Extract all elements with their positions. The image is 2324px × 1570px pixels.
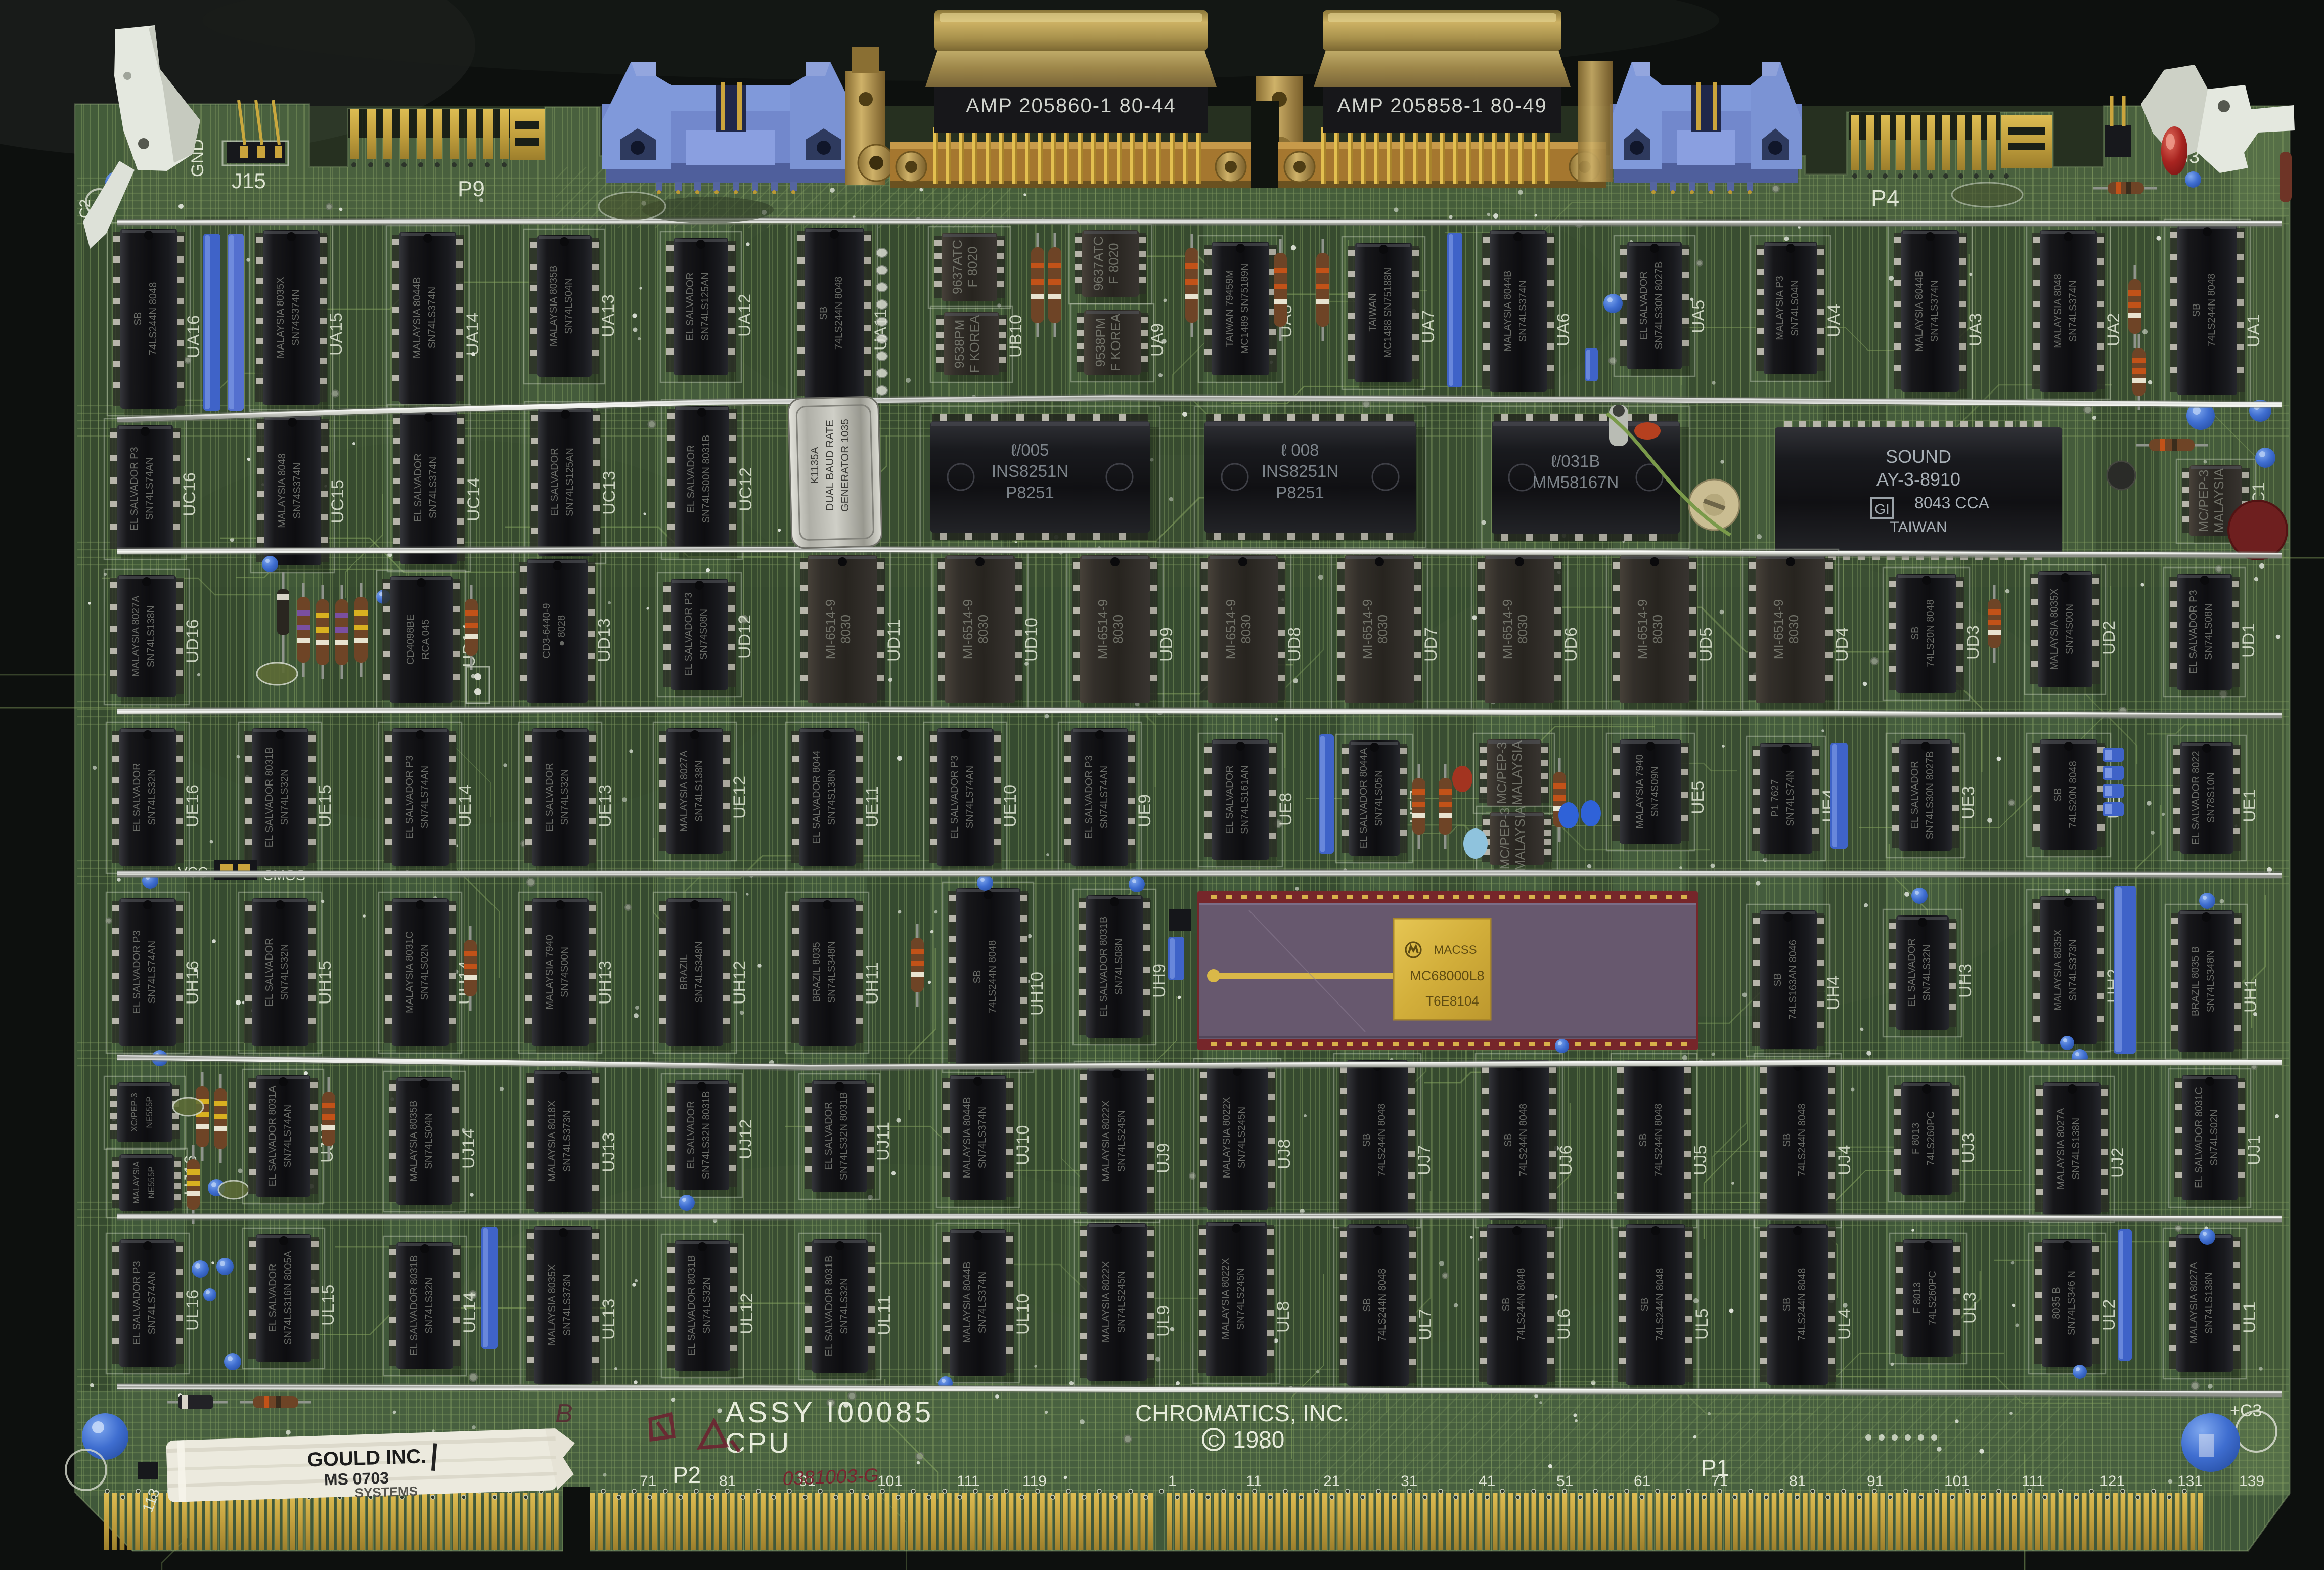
svg-text:MI-6514-9: MI-6514-9: [960, 599, 975, 660]
svg-text:71: 71: [640, 1473, 656, 1490]
svg-text:SN74LS125AN: SN74LS125AN: [700, 272, 711, 341]
svg-text:74LS244N 8048: 74LS244N 8048: [987, 940, 998, 1014]
svg-text:EL SALVADOR 8031B: EL SALVADOR 8031B: [409, 1255, 420, 1356]
svg-text:UL10: UL10: [1013, 1294, 1033, 1335]
svg-text:AY-3-8910: AY-3-8910: [1876, 469, 1960, 490]
svg-text:8030: 8030: [1786, 615, 1801, 644]
svg-text:MALAYSIA 8027A: MALAYSIA 8027A: [2188, 1262, 2200, 1344]
svg-text:P2: P2: [673, 1462, 701, 1488]
svg-text:31: 31: [1401, 1473, 1417, 1490]
svg-text:EL SALVADOR P3: EL SALVADOR P3: [683, 592, 694, 676]
svg-text:GI: GI: [1874, 501, 1890, 517]
svg-text:SN74S08N: SN74S08N: [698, 609, 709, 660]
svg-text:81: 81: [719, 1473, 736, 1490]
svg-text:● 8028: ● 8028: [556, 615, 567, 646]
svg-text:SN74LS32N: SN74LS32N: [147, 769, 158, 825]
svg-text:SN74LS32N: SN74LS32N: [424, 1277, 435, 1333]
svg-text:74LS20N 8048: 74LS20N 8048: [1925, 599, 1936, 667]
svg-text:139: 139: [2239, 1473, 2264, 1490]
svg-text:NE555P: NE555P: [147, 1166, 156, 1198]
svg-text:EL SALVADOR P3: EL SALVADOR P3: [129, 447, 140, 530]
svg-text:UL3: UL3: [1960, 1292, 1980, 1324]
svg-text:EL SALVADOR 8031B: EL SALVADOR 8031B: [1098, 917, 1109, 1017]
svg-text:EL SALVADOR: EL SALVADOR: [1909, 761, 1920, 829]
svg-text:UJ1: UJ1: [2245, 1135, 2264, 1165]
svg-text:SN74LS74AN: SN74LS74AN: [964, 766, 975, 829]
svg-text:UA7: UA7: [1419, 310, 1438, 343]
svg-text:+C3: +C3: [2230, 1401, 2262, 1420]
svg-text:MALAYSIA 8044B: MALAYSIA 8044B: [1502, 271, 1513, 352]
svg-text:EL SALVADOR P3: EL SALVADOR P3: [949, 755, 960, 839]
svg-text:UA4: UA4: [1824, 304, 1844, 337]
svg-text:SN74LS374N: SN74LS374N: [1929, 280, 1940, 342]
svg-text:P1: P1: [1701, 1455, 1729, 1481]
svg-text:SN74S09N: SN74S09N: [1649, 766, 1661, 817]
svg-text:EL SALVADOR: EL SALVADOR: [686, 1101, 697, 1169]
svg-text:9538PM: 9538PM: [952, 320, 967, 369]
svg-text:UL4: UL4: [1835, 1309, 1854, 1340]
svg-text:8030: 8030: [1650, 615, 1665, 644]
svg-text:61: 61: [1634, 1473, 1650, 1490]
svg-text:EL SALVADOR: EL SALVADOR: [549, 448, 560, 516]
svg-text:111: 111: [957, 1473, 980, 1490]
svg-text:UJ14: UJ14: [459, 1129, 478, 1169]
svg-text:UD7: UD7: [1421, 627, 1441, 662]
svg-text:MALAYSIA 8048: MALAYSIA 8048: [2052, 274, 2064, 348]
svg-text:41: 41: [1479, 1473, 1495, 1490]
svg-text:MALAYSIA: MALAYSIA: [1509, 740, 1525, 805]
svg-text:74LS244N 8048: 74LS244N 8048: [2206, 274, 2217, 347]
svg-text:SN74LS30N 8027B: SN74LS30N 8027B: [1653, 261, 1665, 350]
svg-text:UA1: UA1: [2244, 314, 2263, 347]
svg-text:UA2: UA2: [2104, 313, 2123, 346]
svg-text:SN74LS00N 8031B: SN74LS00N 8031B: [701, 435, 712, 524]
svg-text:SN78S10N: SN78S10N: [2206, 772, 2217, 823]
svg-text:UL6: UL6: [1554, 1309, 1574, 1340]
svg-text:UD8: UD8: [1285, 627, 1304, 662]
svg-text:UE12: UE12: [730, 776, 749, 819]
svg-text:UL13: UL13: [599, 1299, 618, 1340]
svg-text:UC16: UC16: [180, 472, 199, 516]
svg-text:SN74LS05N: SN74LS05N: [1373, 770, 1384, 826]
svg-text:J15: J15: [232, 169, 266, 193]
svg-text:EL SALVADOR P3: EL SALVADOR P3: [131, 930, 143, 1014]
svg-text:UD4: UD4: [1833, 627, 1852, 662]
svg-text:SN74LS245N: SN74LS245N: [1236, 1107, 1247, 1168]
svg-text:8030: 8030: [838, 615, 853, 644]
svg-text:UJ6: UJ6: [1556, 1145, 1576, 1175]
svg-text:F 8020: F 8020: [965, 247, 980, 288]
svg-text:UH10: UH10: [1027, 972, 1047, 1016]
svg-text:UE11: UE11: [863, 786, 882, 827]
svg-text:UE16: UE16: [183, 784, 202, 827]
svg-text:UD9: UD9: [1157, 627, 1176, 662]
svg-text:SN74S374N: SN74S374N: [292, 462, 303, 518]
svg-text:SN74LS74AN: SN74LS74AN: [1099, 766, 1110, 829]
svg-text:MALAYSIA: MALAYSIA: [2211, 468, 2226, 533]
svg-text:SN74LS138N: SN74LS138N: [694, 760, 705, 822]
svg-text:BRAZIL 8035 B: BRAZIL 8035 B: [2190, 946, 2201, 1016]
svg-text:SN74LS138N: SN74LS138N: [2071, 1118, 2082, 1180]
svg-text:SB: SB: [1910, 627, 1921, 640]
svg-text:SN74LS04N: SN74LS04N: [1790, 280, 1801, 336]
svg-text:SN74LS74N: SN74LS74N: [1785, 770, 1796, 826]
svg-text:CD3-6440-9: CD3-6440-9: [541, 603, 552, 659]
svg-text:SB: SB: [132, 312, 144, 326]
svg-text:EL SALVADOR: EL SALVADOR: [685, 272, 696, 340]
svg-text:MI-6514-9: MI-6514-9: [1635, 599, 1650, 660]
svg-text:9637ATC: 9637ATC: [950, 240, 965, 294]
svg-text:F KOREA: F KOREA: [967, 315, 982, 373]
svg-text:UH12: UH12: [730, 961, 749, 1005]
svg-text:MI-6514-9: MI-6514-9: [1500, 599, 1515, 660]
svg-text:101: 101: [1944, 1473, 1970, 1490]
svg-text:F 8013: F 8013: [1910, 1123, 1921, 1154]
svg-text:UA3: UA3: [1966, 313, 1985, 346]
svg-text:SN74LS373N: SN74LS373N: [2068, 939, 2079, 1001]
svg-text:74LS244N 8048: 74LS244N 8048: [1797, 1104, 1808, 1177]
svg-text:SN74LS32N 8031B: SN74LS32N 8031B: [701, 1091, 712, 1180]
svg-text:EL SALVADOR: EL SALVADOR: [823, 1102, 834, 1170]
svg-text:74LS244N 8048: 74LS244N 8048: [1377, 1269, 1388, 1342]
svg-text:SB: SB: [1639, 1298, 1650, 1312]
svg-text:TAIWAN: TAIWAN: [1367, 293, 1378, 332]
svg-text:SN74S138N: SN74S138N: [826, 769, 837, 825]
svg-text:74LS244N 8048: 74LS244N 8048: [148, 282, 159, 356]
svg-text:UH15: UH15: [316, 961, 335, 1005]
svg-text:74LS244N 8048: 74LS244N 8048: [1518, 1104, 1529, 1177]
svg-text:MALAYSIA 8035B: MALAYSIA 8035B: [408, 1101, 419, 1182]
svg-text:SN74LS32N: SN74LS32N: [559, 769, 570, 825]
svg-text:MALAYSIA P3: MALAYSIA P3: [1774, 276, 1785, 340]
svg-text:EL SALVADOR 8031A: EL SALVADOR 8031A: [267, 1085, 278, 1186]
svg-text:ℓ/031B: ℓ/031B: [1551, 452, 1600, 470]
svg-text:131: 131: [2177, 1473, 2203, 1490]
svg-text:SN74LS374N: SN74LS374N: [1517, 280, 1529, 342]
svg-text:SB: SB: [818, 307, 829, 320]
svg-text:9637ATC: 9637ATC: [1091, 236, 1106, 291]
svg-text:BRAZIL: BRAZIL: [679, 954, 690, 990]
svg-text:MALAYSIA 8035B: MALAYSIA 8035B: [548, 266, 559, 347]
svg-text:8030: 8030: [1238, 615, 1254, 644]
svg-text:SN74LS374N: SN74LS374N: [428, 457, 439, 518]
svg-text:GOULD INC.: GOULD INC.: [307, 1445, 427, 1471]
svg-text:MALAYSIA 7940: MALAYSIA 7940: [544, 935, 555, 1010]
svg-text:UE14: UE14: [456, 784, 475, 827]
svg-text:SN74LS374N: SN74LS374N: [977, 1272, 988, 1333]
svg-text:1: 1: [1168, 1473, 1177, 1490]
svg-text:MI-6514-9: MI-6514-9: [1223, 599, 1238, 660]
svg-text:MC/PEP-3: MC/PEP-3: [2196, 470, 2211, 532]
svg-text:UL1: UL1: [2240, 1302, 2259, 1333]
svg-text:P8251: P8251: [1276, 483, 1324, 502]
svg-text:MALAYSIA 8027A: MALAYSIA 8027A: [679, 750, 690, 832]
svg-text:SN74LS04N: SN74LS04N: [563, 278, 574, 334]
svg-text:ASSY I00085: ASSY I00085: [725, 1396, 934, 1429]
svg-text:GENERATOR 1035: GENERATOR 1035: [839, 419, 851, 512]
svg-text:SN74LS74AN: SN74LS74AN: [419, 766, 430, 829]
svg-text:UH3: UH3: [1956, 964, 1975, 998]
svg-text:UD10: UD10: [1022, 618, 1041, 662]
svg-text:SN74S00N: SN74S00N: [559, 947, 570, 997]
svg-text:UJ10: UJ10: [1013, 1125, 1033, 1165]
svg-text:74LS244N 8048: 74LS244N 8048: [1516, 1268, 1527, 1341]
svg-text:74LS244N 8048: 74LS244N 8048: [1376, 1104, 1388, 1177]
svg-text:EL SALVADOR P3: EL SALVADOR P3: [131, 1261, 143, 1344]
svg-text:UL7: UL7: [1416, 1309, 1435, 1340]
svg-text:MALAYSIA 8027A: MALAYSIA 8027A: [130, 595, 142, 677]
svg-text:MALAYSIA 8044B: MALAYSIA 8044B: [412, 277, 423, 359]
svg-text:UA15: UA15: [327, 313, 346, 356]
svg-text:AMP 205858-1 80-49: AMP 205858-1 80-49: [1337, 95, 1547, 117]
svg-text:BRAZIL 8035: BRAZIL 8035: [811, 942, 822, 1002]
svg-text:EL SALVADOR 8044A: EL SALVADOR 8044A: [1358, 748, 1369, 848]
svg-text:EL SALVADOR: EL SALVADOR: [686, 445, 697, 513]
svg-text:NE555P: NE555P: [145, 1096, 154, 1128]
svg-text:0381003-G: 0381003-G: [782, 1465, 879, 1490]
svg-text:SN74LS32N: SN74LS32N: [839, 1278, 850, 1334]
svg-text:111: 111: [2022, 1473, 2045, 1490]
svg-text:EL SALVADOR 8022: EL SALVADOR 8022: [2191, 751, 2202, 844]
svg-text:SOUND: SOUND: [1886, 446, 1951, 467]
svg-text:SB: SB: [972, 970, 983, 984]
svg-text:SN74LS348N: SN74LS348N: [2205, 950, 2216, 1012]
svg-text:8030: 8030: [1375, 615, 1390, 644]
svg-text:TAIWAN 79459M: TAIWAN 79459M: [1224, 270, 1235, 347]
svg-text:UA16: UA16: [184, 315, 203, 358]
svg-text:P8251: P8251: [1006, 483, 1054, 502]
svg-text:UL2: UL2: [2099, 1299, 2119, 1331]
svg-text:UH11: UH11: [863, 962, 882, 1005]
svg-text:MALAYSIA 8044B: MALAYSIA 8044B: [962, 1097, 973, 1179]
svg-text:P1 7627: P1 7627: [1770, 779, 1781, 817]
svg-text:SN74LS32N: SN74LS32N: [701, 1277, 712, 1333]
svg-text:MALAYSIA 8044B: MALAYSIA 8044B: [962, 1262, 973, 1343]
svg-text:SB: SB: [2052, 788, 2064, 802]
svg-text:AMP 205860-1 80-44: AMP 205860-1 80-44: [966, 95, 1176, 117]
svg-text:119: 119: [1022, 1473, 1047, 1490]
svg-text:UA12: UA12: [735, 294, 754, 337]
svg-text:UJ9: UJ9: [1154, 1143, 1173, 1173]
svg-text:UD3: UD3: [1963, 625, 1983, 660]
svg-text:SN74LS161AN: SN74LS161AN: [1239, 765, 1250, 834]
svg-text:CHROMATICS, INC.: CHROMATICS, INC.: [1135, 1400, 1349, 1426]
svg-text:SN74LS74AN: SN74LS74AN: [147, 1272, 158, 1335]
svg-text:MALAYSIA 8031C: MALAYSIA 8031C: [404, 931, 415, 1013]
svg-text:SN74LS32N 8031B: SN74LS32N 8031B: [838, 1092, 850, 1181]
svg-text:SB: SB: [1501, 1298, 1512, 1312]
svg-text:UL16: UL16: [183, 1290, 202, 1331]
svg-text:SN74LS74AN: SN74LS74AN: [147, 941, 158, 1004]
svg-text:UL14: UL14: [460, 1292, 479, 1333]
svg-text:MI-6514-9: MI-6514-9: [1360, 599, 1375, 660]
svg-text:MACSS: MACSS: [1434, 943, 1477, 957]
svg-text:XC/PEP-3: XC/PEP-3: [129, 1093, 139, 1131]
svg-text:MALAYSIA 8022X: MALAYSIA 8022X: [1221, 1097, 1232, 1179]
svg-text:SN74LS316N 8005A: SN74LS316N 8005A: [283, 1250, 294, 1344]
svg-text:SB: SB: [2191, 303, 2202, 317]
svg-text:SN74LS374N: SN74LS374N: [2068, 280, 2079, 342]
svg-text:9538PM: 9538PM: [1093, 318, 1108, 367]
svg-text:UA14: UA14: [463, 313, 482, 356]
svg-text:UH4: UH4: [1824, 976, 1843, 1010]
svg-text:UJ13: UJ13: [599, 1132, 618, 1172]
svg-text:MALAYSIA 8048: MALAYSIA 8048: [277, 453, 288, 528]
svg-text:ℓ 008: ℓ 008: [1281, 441, 1319, 459]
svg-text:UJ2: UJ2: [2108, 1148, 2127, 1178]
svg-text:UC13: UC13: [600, 471, 619, 515]
svg-text:T6E8104: T6E8104: [1425, 993, 1479, 1009]
svg-text:SN74LS02N: SN74LS02N: [2209, 1109, 2220, 1165]
svg-text:UA6: UA6: [1554, 313, 1573, 346]
svg-text:74LS163AN 8046: 74LS163AN 8046: [1787, 940, 1799, 1020]
svg-text:EL SALVADOR: EL SALVADOR: [413, 453, 424, 521]
svg-text:ℓ/005: ℓ/005: [1011, 441, 1049, 459]
svg-text:B: B: [555, 1399, 573, 1428]
svg-text:MALAYSIA: MALAYSIA: [131, 1161, 141, 1203]
svg-text:SN74LS373N: SN74LS373N: [562, 1274, 573, 1336]
svg-text:UL15: UL15: [319, 1285, 338, 1326]
svg-text:91: 91: [1867, 1473, 1884, 1490]
svg-text:8043 CCA: 8043 CCA: [1914, 494, 1989, 512]
svg-text:UH9: UH9: [1150, 964, 1169, 998]
svg-text:MI-6514-9: MI-6514-9: [1771, 599, 1786, 660]
svg-text:UL9: UL9: [1154, 1305, 1173, 1337]
svg-text:MC68000L8: MC68000L8: [1410, 968, 1484, 983]
svg-text:SN74LS374N: SN74LS374N: [427, 287, 438, 348]
svg-text:SN74LS346 N: SN74LS346 N: [2066, 1271, 2077, 1335]
svg-text:11: 11: [1246, 1473, 1262, 1490]
svg-text:101: 101: [877, 1473, 903, 1490]
svg-text:UE13: UE13: [596, 784, 615, 827]
svg-text:SN74LS245N: SN74LS245N: [1235, 1268, 1246, 1330]
svg-text:F 8013: F 8013: [1912, 1282, 1923, 1314]
svg-text:MM58167N: MM58167N: [1533, 473, 1619, 492]
svg-text:MC1489 SN75189N: MC1489 SN75189N: [1239, 264, 1250, 354]
svg-text:SB: SB: [1781, 1133, 1793, 1147]
svg-text:8030: 8030: [1515, 615, 1530, 644]
svg-text:SN74LS373N: SN74LS373N: [562, 1110, 573, 1172]
svg-text:MALAYSIA 7940: MALAYSIA 7940: [1634, 754, 1645, 829]
svg-text:F 8020: F 8020: [1106, 243, 1121, 284]
svg-text:CD4098BE: CD4098BE: [405, 614, 416, 665]
svg-text:SYSTEMS: SYSTEMS: [354, 1484, 418, 1501]
svg-text:UJ8: UJ8: [1275, 1139, 1294, 1169]
svg-text:SN74S00N: SN74S00N: [2064, 604, 2075, 655]
svg-text:SN74LS138N: SN74LS138N: [146, 605, 157, 667]
svg-text:INS8251N: INS8251N: [1262, 462, 1338, 481]
svg-text:UE5: UE5: [1688, 781, 1708, 814]
svg-text:8030: 8030: [975, 615, 991, 644]
svg-text:TAIWAN: TAIWAN: [1890, 519, 1947, 536]
svg-text:SN74LS08N: SN74LS08N: [2203, 603, 2214, 660]
svg-text:UD1: UD1: [2239, 623, 2258, 658]
svg-text:UC14: UC14: [464, 477, 483, 521]
svg-text:8035 B: 8035 B: [2051, 1287, 2062, 1319]
svg-text:MC1488 SN75188N: MC1488 SN75188N: [1382, 268, 1394, 358]
svg-text:SN74LS32N: SN74LS32N: [279, 944, 290, 1000]
svg-text:UE9: UE9: [1135, 794, 1154, 827]
svg-text:C: C: [1208, 1432, 1219, 1450]
svg-text:74LS244N 8048: 74LS244N 8048: [1797, 1268, 1808, 1341]
svg-text:UB10: UB10: [1006, 315, 1025, 358]
svg-text:SN74LS125AN: SN74LS125AN: [564, 448, 575, 516]
svg-text:P4: P4: [1871, 185, 1899, 211]
svg-text:UD5: UD5: [1696, 627, 1716, 662]
svg-text:EL SALVADOR P3: EL SALVADOR P3: [1084, 755, 1095, 839]
svg-text:8030: 8030: [1110, 615, 1126, 644]
svg-text:EL SALVADOR 8031C: EL SALVADOR 8031C: [2194, 1087, 2205, 1188]
svg-text:UD13: UD13: [595, 618, 614, 662]
svg-text:MALAYSIA 8022X: MALAYSIA 8022X: [1101, 1101, 1112, 1182]
svg-text:P9: P9: [458, 177, 485, 201]
svg-text:SB: SB: [1503, 1133, 1514, 1147]
svg-text:UD16: UD16: [183, 619, 202, 663]
svg-text:UD6: UD6: [1561, 627, 1581, 662]
svg-text:SN74LS30N 8027B: SN74LS30N 8027B: [1925, 751, 1936, 840]
svg-text:UJ5: UJ5: [1691, 1145, 1710, 1175]
svg-text:UJ3: UJ3: [1959, 1133, 1978, 1163]
svg-text:SN74LS08N: SN74LS08N: [1113, 938, 1125, 994]
svg-text:EL SALVADOR: EL SALVADOR: [131, 763, 143, 831]
svg-text:SN74LS348N: SN74LS348N: [826, 941, 837, 1003]
svg-text:UJ12: UJ12: [736, 1119, 755, 1159]
svg-text:74LS260PC: 74LS260PC: [1926, 1111, 1937, 1166]
svg-text:SN74LS348N: SN74LS348N: [694, 941, 705, 1003]
svg-text:EL SALVADOR 8044: EL SALVADOR 8044: [811, 750, 822, 844]
svg-text:MALAYSIA 8035X: MALAYSIA 8035X: [2052, 930, 2064, 1011]
svg-text:UE3: UE3: [1959, 786, 1978, 819]
svg-text:MALAYSIA 8044B: MALAYSIA 8044B: [1914, 271, 1925, 352]
svg-text:SB: SB: [1638, 1133, 1649, 1147]
svg-text:EL SALVADOR: EL SALVADOR: [1906, 938, 1917, 1007]
svg-text:SB: SB: [1361, 1133, 1372, 1147]
svg-text:INS8251N: INS8251N: [992, 462, 1068, 481]
svg-text:UD12: UD12: [735, 615, 754, 659]
svg-text:UA5: UA5: [1689, 300, 1708, 333]
svg-text:51: 51: [1556, 1473, 1573, 1490]
svg-text:EL SALVADOR: EL SALVADOR: [1638, 271, 1649, 339]
svg-text:UD11: UD11: [884, 619, 904, 662]
svg-text:UA11: UA11: [871, 309, 890, 351]
svg-text:UH1: UH1: [2241, 978, 2260, 1013]
svg-text:UJ7: UJ7: [1415, 1145, 1434, 1175]
svg-text:UD2: UD2: [2099, 621, 2119, 655]
svg-text:EL SALVADOR: EL SALVADOR: [1224, 765, 1235, 834]
svg-text:MALAYSIA 8018X: MALAYSIA 8018X: [547, 1101, 558, 1182]
svg-text:74LS244N 8048: 74LS244N 8048: [1653, 1104, 1664, 1177]
svg-text:SN74LS374N: SN74LS374N: [977, 1107, 988, 1168]
svg-text:UC12: UC12: [736, 467, 755, 511]
svg-text:SB: SB: [1362, 1298, 1373, 1312]
svg-text:SN74LS245N: SN74LS245N: [1116, 1271, 1127, 1333]
svg-text:SN74LS04N: SN74LS04N: [423, 1113, 434, 1169]
svg-text:UC15: UC15: [328, 479, 347, 524]
svg-text:UL11: UL11: [875, 1295, 894, 1335]
svg-text:EL SALVADOR: EL SALVADOR: [267, 1263, 279, 1332]
svg-text:UL12: UL12: [737, 1293, 756, 1334]
svg-text:F KOREA: F KOREA: [1108, 313, 1123, 371]
svg-text:MALAYSIA 8022X: MALAYSIA 8022X: [1220, 1258, 1231, 1340]
svg-text:MALAYSIA 8035X: MALAYSIA 8035X: [275, 277, 286, 359]
svg-text:DUAL BAUD RATE: DUAL BAUD RATE: [824, 420, 836, 511]
svg-text:74LS260PC: 74LS260PC: [1927, 1271, 1938, 1325]
svg-text:MALAYSIA: MALAYSIA: [1512, 806, 1528, 871]
svg-text:UL5: UL5: [1692, 1309, 1712, 1340]
svg-text:UE1: UE1: [2240, 789, 2259, 822]
svg-text:SN74S374N: SN74S374N: [290, 289, 301, 345]
svg-text:UE15: UE15: [316, 784, 335, 827]
